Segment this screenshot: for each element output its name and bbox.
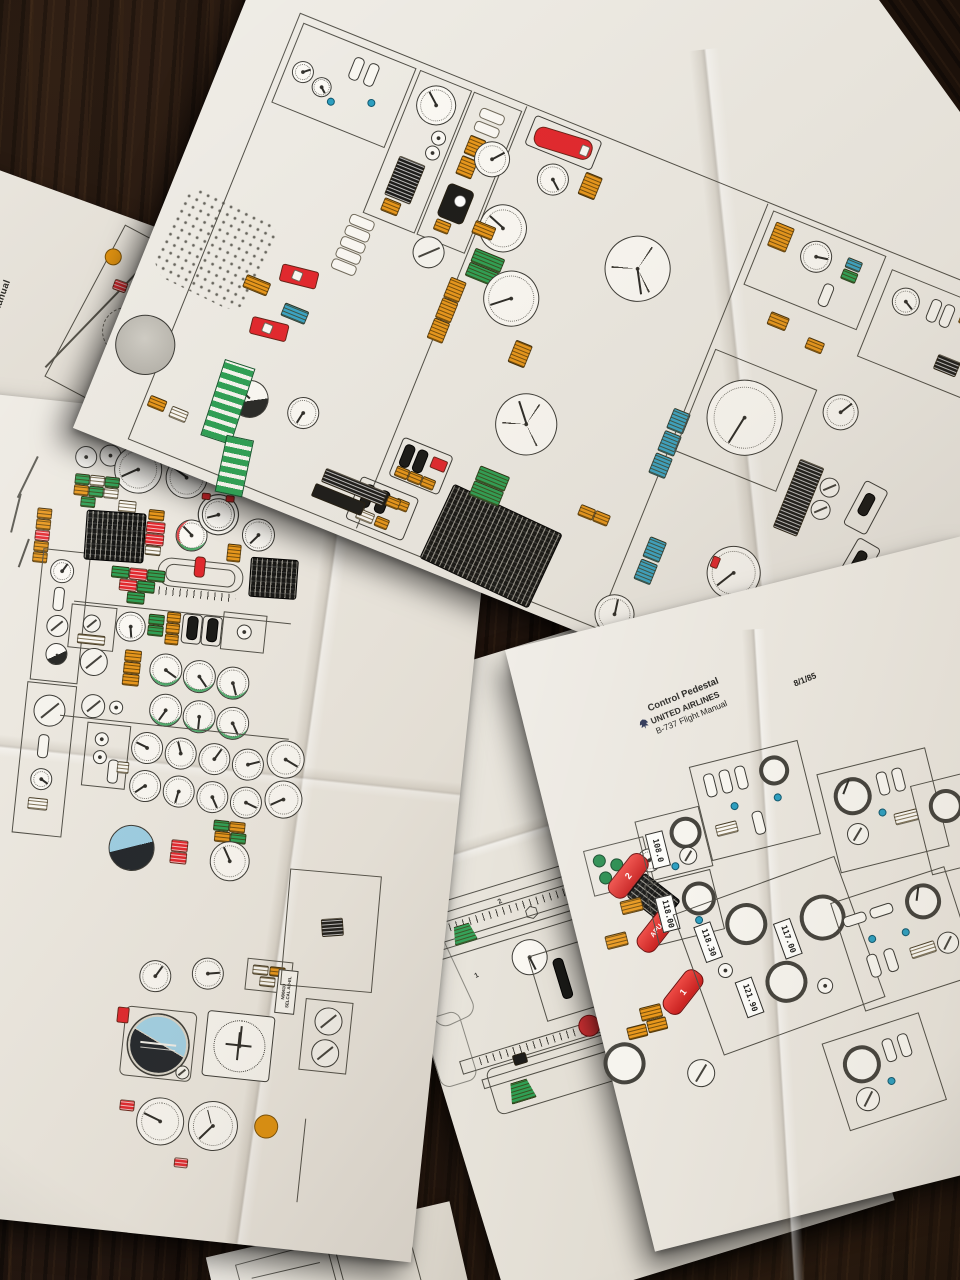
chip xyxy=(252,964,269,976)
tdot xyxy=(366,98,376,108)
i xyxy=(18,539,30,568)
dial xyxy=(29,767,53,791)
dial xyxy=(197,742,232,777)
i xyxy=(17,456,39,498)
chip xyxy=(164,633,179,645)
chip xyxy=(119,1099,135,1112)
vhf1-frequency-display: 118.30 xyxy=(693,921,723,963)
dial xyxy=(309,74,335,100)
tog xyxy=(890,767,906,793)
dial xyxy=(49,558,75,584)
annunciator-panel xyxy=(83,509,146,563)
chip xyxy=(173,1157,188,1168)
tog xyxy=(702,772,718,798)
spare-bulbs-chip xyxy=(148,509,165,522)
tog xyxy=(868,902,894,920)
dial xyxy=(161,774,196,809)
ln xyxy=(822,1012,947,1131)
ln xyxy=(81,722,131,790)
ln xyxy=(689,740,821,861)
dial xyxy=(236,624,252,640)
knob xyxy=(45,614,69,638)
chip xyxy=(626,1023,649,1040)
ring xyxy=(900,879,945,924)
united-airlines-logo xyxy=(638,718,650,731)
chip xyxy=(103,487,119,500)
span: 121.90 xyxy=(740,982,758,1012)
tog xyxy=(362,62,381,88)
chip xyxy=(909,940,937,959)
ring xyxy=(756,752,792,788)
chip xyxy=(225,495,235,503)
chip xyxy=(77,633,106,646)
i xyxy=(10,493,22,532)
horizontal-situation-indicator xyxy=(201,1010,276,1083)
tdot xyxy=(878,808,888,818)
chip xyxy=(201,492,211,500)
chip xyxy=(321,918,344,937)
sheet-edge-title: B-737 Flight Manual xyxy=(0,278,13,371)
ln xyxy=(298,998,353,1075)
knob xyxy=(934,929,960,957)
nav-frequency-display: 108.0 xyxy=(645,830,671,869)
airspeed-indicator-2 xyxy=(134,1095,187,1148)
compass-dial xyxy=(114,610,147,643)
knob xyxy=(310,1038,341,1069)
ring xyxy=(760,955,814,1009)
ring xyxy=(838,1040,886,1088)
vhf3-frequency-display: 121.90 xyxy=(735,976,765,1018)
dial xyxy=(265,739,307,781)
dial xyxy=(128,768,163,803)
ring xyxy=(830,773,876,819)
chip xyxy=(144,545,161,557)
tog xyxy=(882,947,900,973)
standby-horizon xyxy=(106,823,157,874)
tog xyxy=(816,282,835,308)
chip xyxy=(767,221,795,253)
tog xyxy=(718,768,734,794)
chip xyxy=(73,484,89,497)
knob xyxy=(684,1056,718,1090)
chip xyxy=(619,897,644,916)
dial xyxy=(228,785,263,820)
chip xyxy=(373,515,390,530)
revision-date: 8/1/85 xyxy=(792,670,818,688)
chip xyxy=(419,476,436,491)
tdot xyxy=(326,96,336,106)
dial xyxy=(888,283,924,319)
dial xyxy=(230,747,265,782)
dial xyxy=(130,730,165,765)
span: 1 xyxy=(678,987,688,996)
tdot xyxy=(867,934,877,944)
control-column xyxy=(193,556,206,578)
tog xyxy=(896,1032,914,1058)
dial xyxy=(263,779,305,821)
tog xyxy=(52,586,65,611)
chip xyxy=(147,624,164,637)
dial xyxy=(240,517,276,553)
dial xyxy=(181,658,217,694)
i xyxy=(296,1119,306,1203)
chip xyxy=(111,565,130,579)
chip xyxy=(169,851,187,865)
span: 117.00 xyxy=(779,924,797,954)
pedestal-header: Control Pedestal UNITED AIRLINES B-737 F… xyxy=(633,676,729,741)
tog xyxy=(842,910,868,928)
chip xyxy=(715,820,739,837)
ln xyxy=(67,603,117,652)
chip xyxy=(429,456,448,473)
knob xyxy=(78,647,109,678)
dial xyxy=(163,736,198,771)
gdot xyxy=(591,853,607,869)
chip xyxy=(384,155,426,204)
tog xyxy=(865,953,883,979)
tdot xyxy=(886,1076,896,1086)
knob xyxy=(82,614,102,634)
orange-caution-light xyxy=(253,1113,279,1139)
chip xyxy=(118,578,137,592)
dial xyxy=(815,976,836,997)
chip xyxy=(126,591,145,605)
dial xyxy=(423,143,443,163)
dial xyxy=(195,780,230,815)
dial xyxy=(148,652,184,688)
tog xyxy=(37,734,50,759)
chip xyxy=(933,354,960,378)
tog xyxy=(751,810,767,836)
vhf2-frequency-display: 117.00 xyxy=(773,918,803,960)
photo-scene: B-737 Flight Manual 2 1 ⬡ xyxy=(0,0,960,1280)
dial xyxy=(215,665,251,701)
dial xyxy=(716,961,735,980)
chip xyxy=(226,543,242,562)
chip xyxy=(122,673,140,687)
tog xyxy=(733,765,749,791)
thrust-lever-1-label: 1 xyxy=(473,972,480,980)
tdot xyxy=(730,801,740,811)
chip xyxy=(80,496,96,509)
dial xyxy=(138,959,173,994)
dial xyxy=(94,732,109,747)
tog xyxy=(875,771,891,797)
span: 108.0 xyxy=(651,837,666,863)
tdot xyxy=(773,793,783,803)
compass-gauge xyxy=(695,368,794,467)
ring xyxy=(925,785,960,826)
dial xyxy=(44,642,68,666)
chip xyxy=(116,1006,130,1023)
ln xyxy=(12,681,78,837)
span: 118.30 xyxy=(699,927,717,957)
chip xyxy=(259,976,276,988)
dial xyxy=(74,445,98,469)
span: 2 xyxy=(623,871,633,880)
knob xyxy=(80,693,106,719)
tdot xyxy=(901,927,911,937)
fuel-qty-test-panel xyxy=(220,611,268,653)
clock xyxy=(185,1099,240,1154)
chip xyxy=(27,797,48,811)
dial xyxy=(795,236,837,278)
chip xyxy=(116,761,129,774)
dial xyxy=(208,839,252,883)
chip xyxy=(604,931,629,950)
knob xyxy=(313,1006,344,1037)
dial xyxy=(215,705,251,741)
takeoff-data-placard xyxy=(248,557,299,600)
knob xyxy=(853,1084,883,1114)
tdot xyxy=(671,861,681,871)
dial xyxy=(410,79,462,131)
dial xyxy=(92,749,107,764)
ring xyxy=(719,897,773,951)
stab-trim-knob xyxy=(32,693,67,728)
dial xyxy=(190,956,225,991)
dial xyxy=(108,700,123,715)
knob xyxy=(845,821,872,848)
dial xyxy=(148,692,184,728)
tog xyxy=(880,1037,898,1063)
